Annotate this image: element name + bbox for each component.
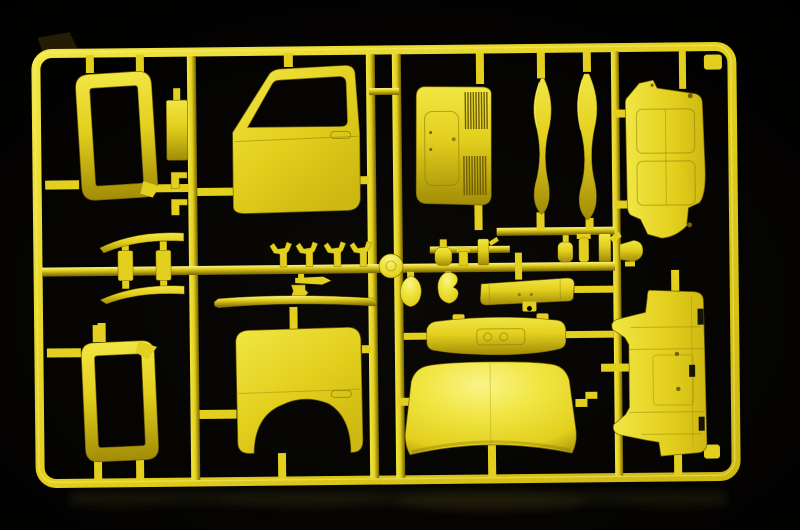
sprue-photo [0, 0, 800, 530]
roof-panel [405, 361, 577, 455]
photo-canvas [0, 0, 800, 530]
hub-disc [379, 254, 403, 278]
mounting-plate [166, 100, 188, 160]
cab-rear-panel [415, 86, 492, 206]
